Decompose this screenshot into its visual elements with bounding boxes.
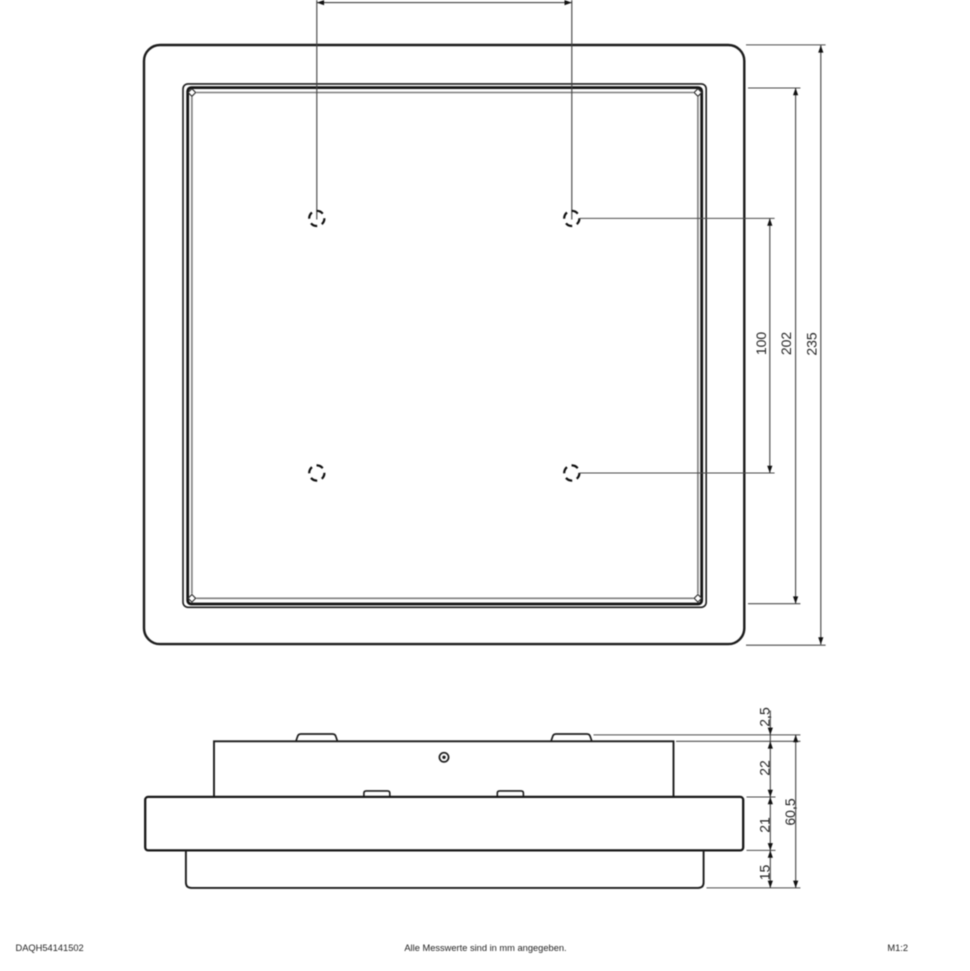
svg-text:60,5: 60,5 — [782, 798, 798, 825]
svg-text:DAQH54141502: DAQH54141502 — [16, 943, 84, 953]
svg-text:Alle Messwerte sind in mm ange: Alle Messwerte sind in mm angegeben. — [404, 943, 566, 953]
svg-text:235: 235 — [804, 332, 820, 356]
svg-text:22: 22 — [756, 760, 772, 776]
svg-text:21: 21 — [756, 817, 772, 833]
svg-text:100: 100 — [753, 332, 769, 356]
svg-text:15: 15 — [756, 865, 772, 881]
svg-text:2,5: 2,5 — [756, 707, 772, 727]
svg-text:202: 202 — [778, 332, 794, 356]
svg-text:M1:2: M1:2 — [887, 943, 908, 953]
